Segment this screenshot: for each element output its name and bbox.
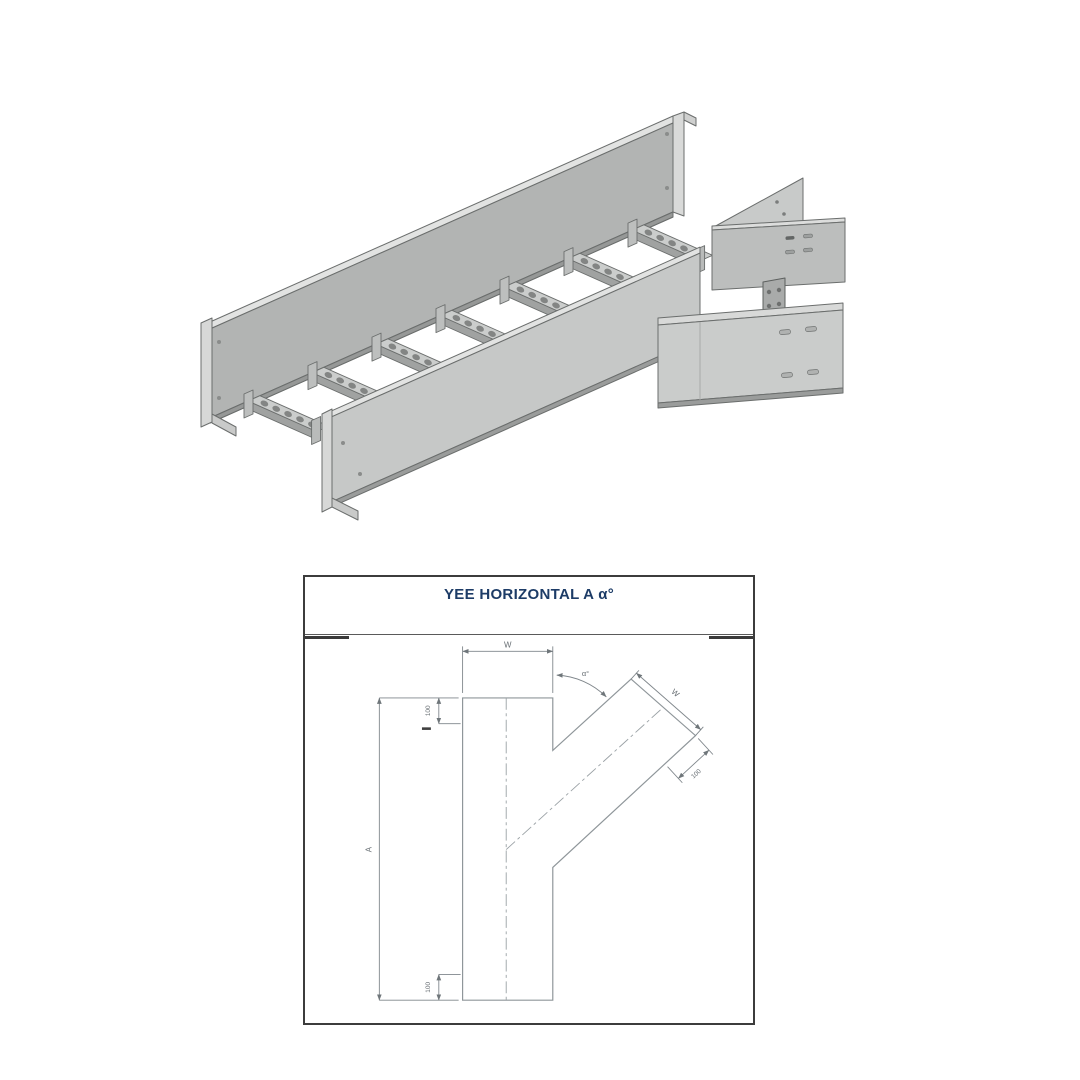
centerlines	[506, 698, 663, 1000]
rung	[244, 390, 329, 445]
dimension-width-branch	[631, 670, 703, 735]
label-width-main: W	[504, 640, 512, 649]
figure-outline	[463, 679, 696, 1000]
dimension-width-main	[463, 646, 553, 693]
yee-dimension-drawing: W A 100 100	[305, 577, 753, 1023]
label-length-main: A	[364, 846, 373, 852]
label-tangent-top: 100	[425, 705, 432, 716]
page: YEE HORIZONTAL A α°	[0, 0, 1080, 1080]
frame-centering-mark-right	[709, 636, 753, 639]
frame-centering-mark-left	[305, 636, 349, 639]
dimension-length-main	[379, 698, 458, 1000]
title-separator-line	[305, 634, 753, 635]
label-branch-angle: α°	[582, 669, 589, 678]
drawing-box: YEE HORIZONTAL A α°	[303, 575, 755, 1025]
drawing-title: YEE HORIZONTAL A α°	[305, 586, 753, 603]
dimension-tangent-bottom	[439, 974, 461, 1000]
dimension-branch-angle	[557, 675, 607, 697]
label-tangent-branch: 100	[690, 768, 703, 781]
label-width-branch: W	[670, 687, 682, 699]
gusset-plate	[712, 178, 803, 228]
branch-near-rail-panel	[658, 303, 843, 408]
label-tangent-bottom: 100	[425, 982, 432, 993]
tray-3d-illustration	[140, 70, 860, 540]
